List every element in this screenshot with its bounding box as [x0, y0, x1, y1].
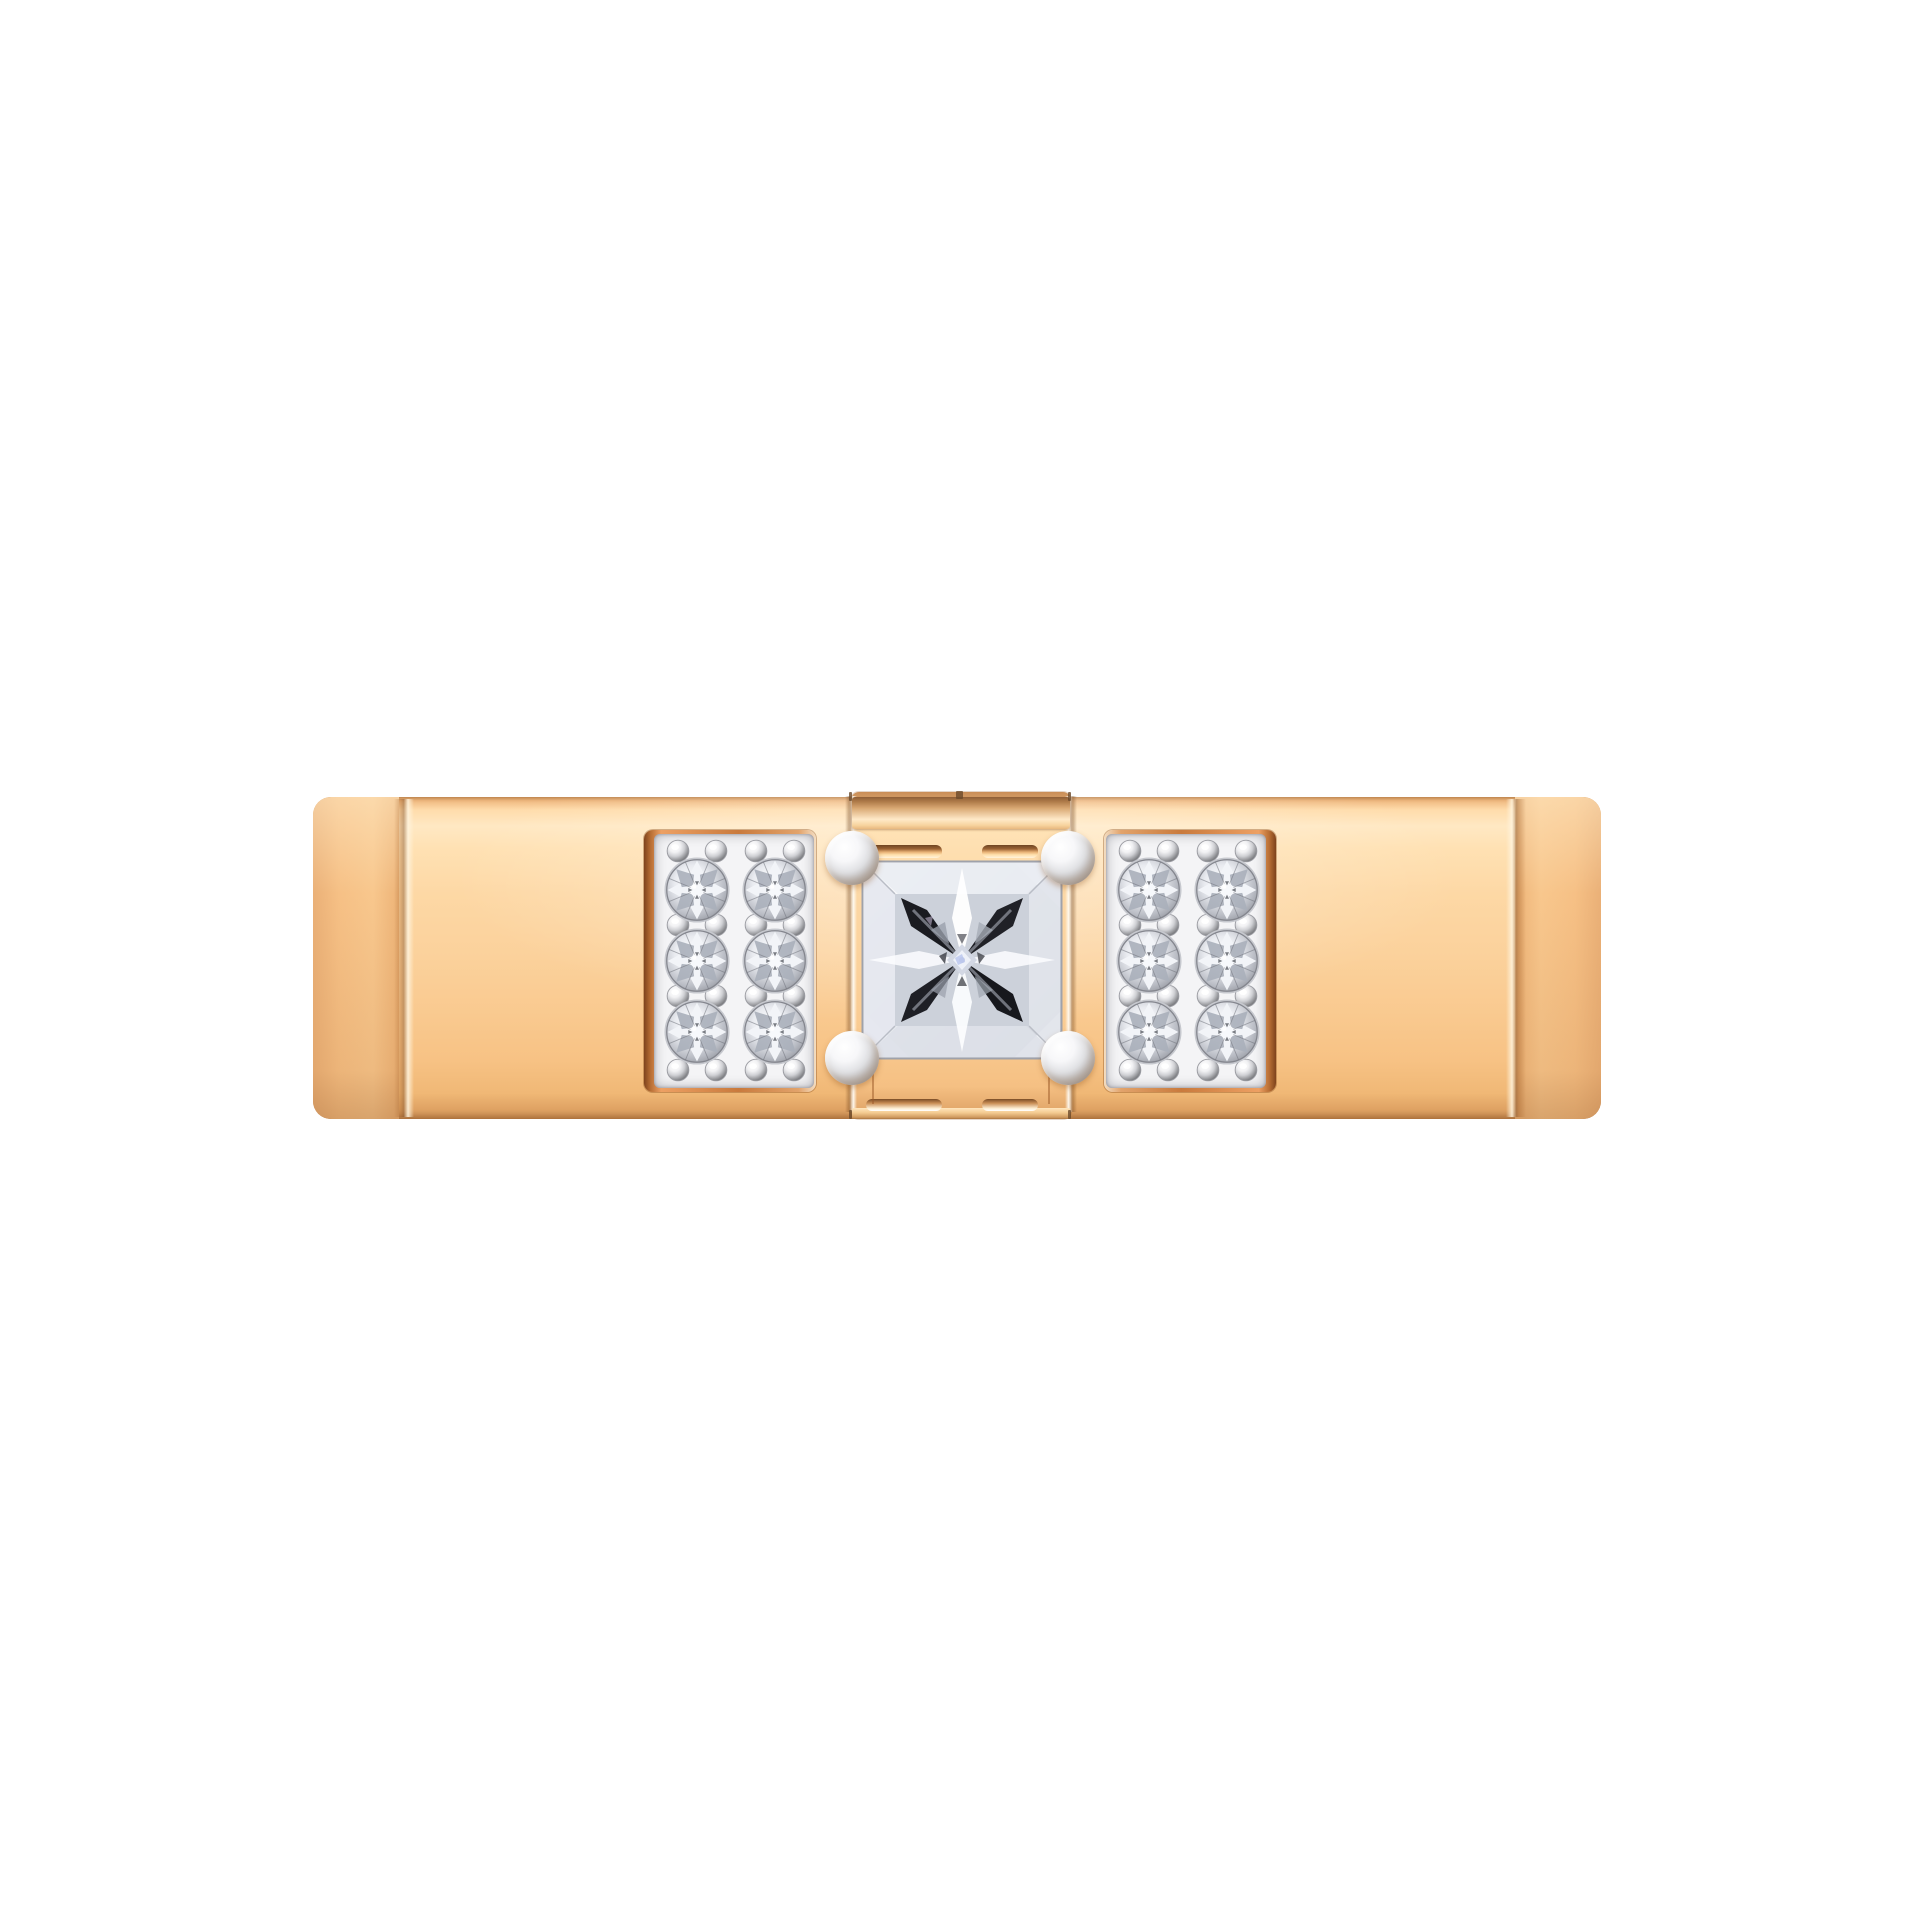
edge-tick: [1068, 792, 1071, 801]
prong-ball-top-right: [1041, 831, 1095, 885]
gallery-slit-top-right: [982, 845, 1038, 858]
pave-panel-left-setting: [654, 834, 814, 1088]
prong-ball-bottom-left: [825, 1031, 879, 1085]
edge-tick: [956, 791, 963, 799]
pave-left-stones: [654, 834, 814, 1088]
edge-tick: [849, 1110, 852, 1119]
pave-panel-right: [1104, 830, 1276, 1092]
round-diamonds: [1116, 857, 1259, 1064]
product-image: [0, 0, 1920, 1920]
edge-tick: [849, 792, 852, 801]
band-end-cap-left: [313, 797, 399, 1119]
prong-ball-top-left: [825, 831, 879, 885]
round-diamonds: [664, 857, 807, 1064]
edge-tick: [1068, 1110, 1071, 1119]
pave-panel-right-setting: [1106, 834, 1266, 1088]
prong-ball-bottom-right: [1041, 1031, 1095, 1085]
gallery-slit-bottom-right: [982, 1099, 1038, 1111]
princess-diamond: [861, 860, 1063, 1060]
band-seam-left: [394, 799, 414, 1117]
band-end-cap-right: [1515, 797, 1601, 1119]
band-seam-right: [1506, 799, 1526, 1117]
pave-panel-left: [644, 830, 816, 1092]
head-top-bevel: [852, 797, 1070, 829]
pave-right-stones: [1106, 834, 1266, 1088]
gallery-slit-bottom-left: [866, 1099, 942, 1111]
